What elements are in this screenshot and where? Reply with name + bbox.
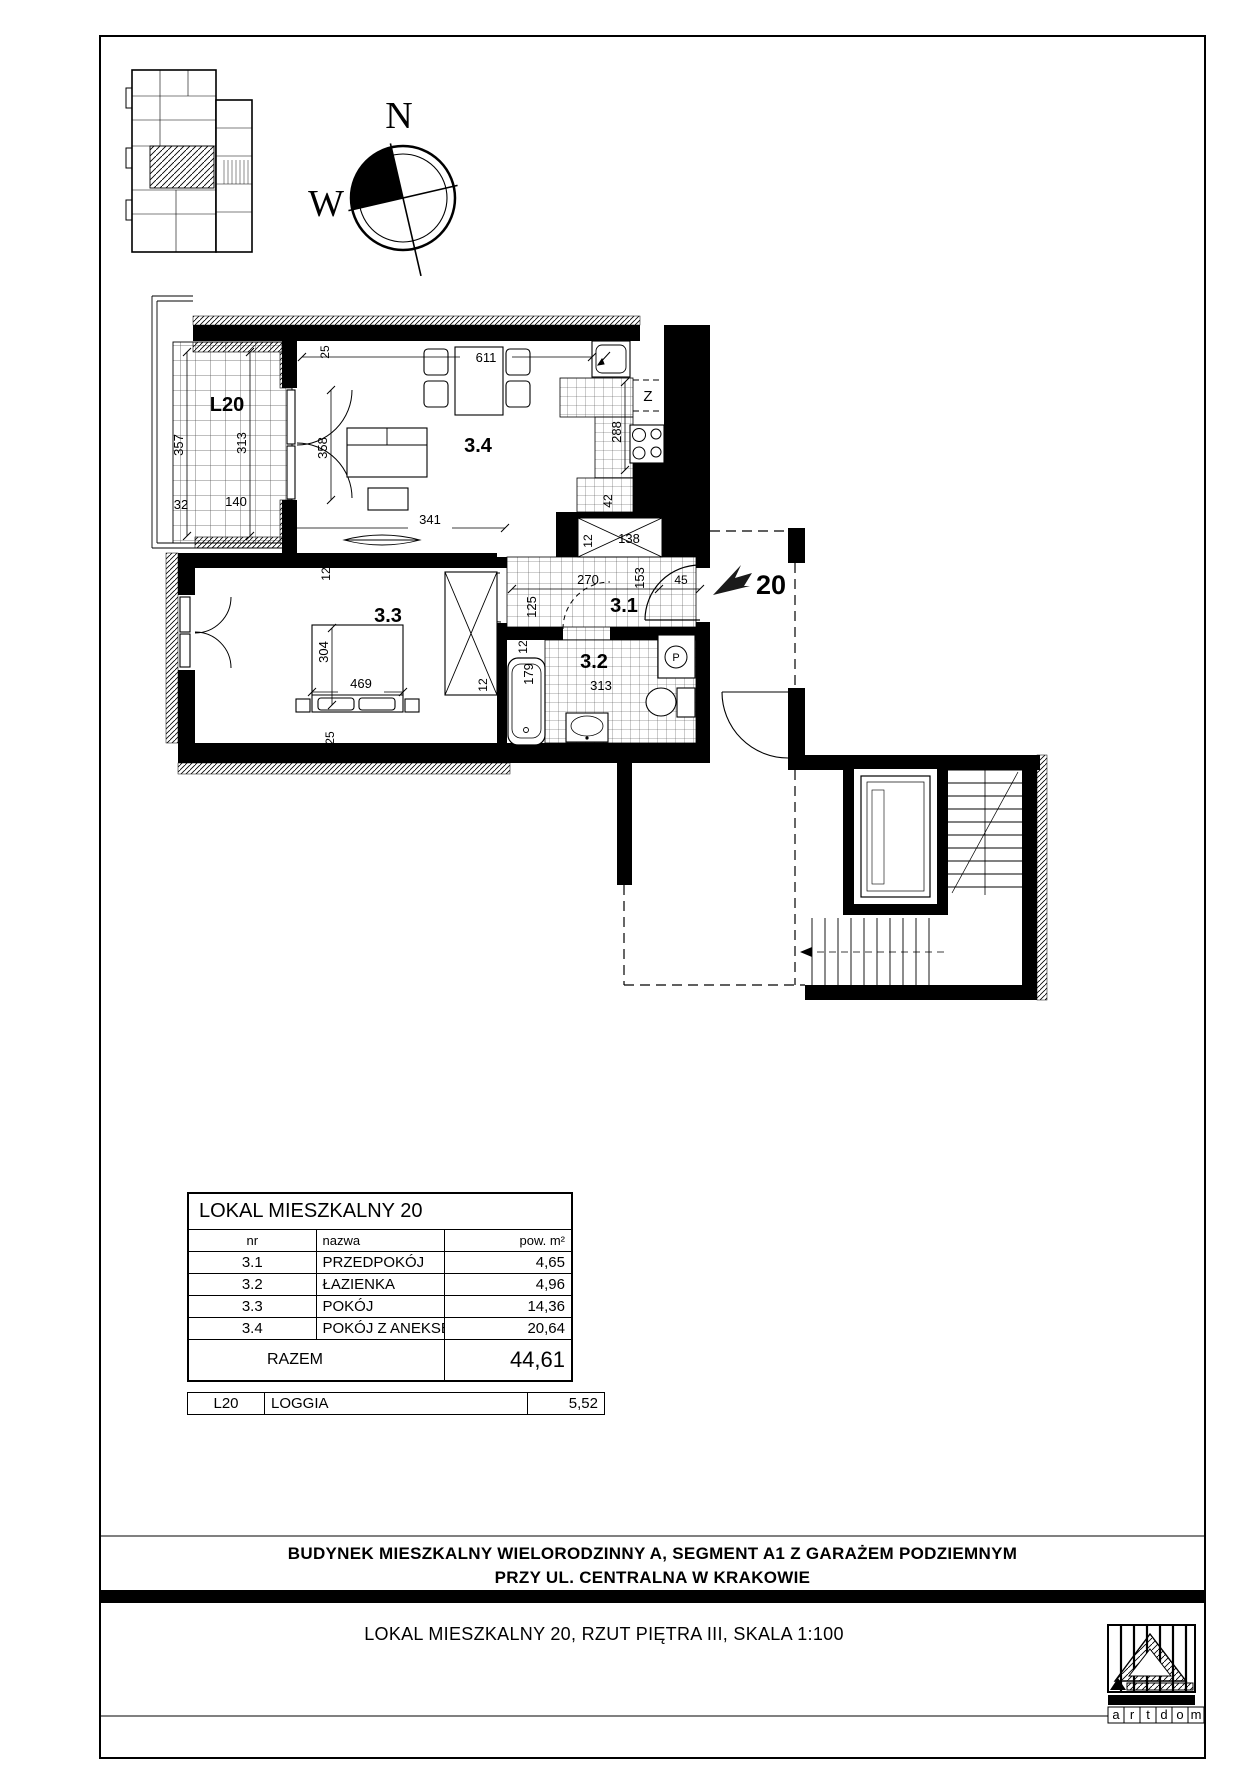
dim-12a: 12 bbox=[581, 534, 595, 548]
bath-threshold-tiles bbox=[563, 627, 612, 640]
label-fridge: Z bbox=[643, 388, 652, 405]
dim-42: 42 bbox=[601, 494, 615, 508]
building-title: BUDYNEK MIESZKALNY WIELORODZINNY A, SEGM… bbox=[100, 1542, 1205, 1590]
dim-288: 288 bbox=[609, 421, 624, 443]
table-row: 3.4 POKÓJ Z ANEKSEM KUCH. 20,64 bbox=[188, 1318, 572, 1340]
pillow bbox=[359, 698, 395, 710]
dim-304: 304 bbox=[316, 641, 331, 663]
floor-plan-sheet: { "compass": {"north": "N", "west": "W"}… bbox=[0, 0, 1250, 1767]
chair bbox=[506, 349, 530, 375]
decor-leaf bbox=[344, 535, 420, 545]
cell-nazwa: POKÓJ bbox=[316, 1296, 444, 1318]
floor-plan: P 20 bbox=[152, 296, 1047, 1000]
cell-nr: 3.4 bbox=[188, 1318, 316, 1340]
cell-pow: 4,96 bbox=[444, 1274, 572, 1296]
dim-25a: 25 bbox=[318, 345, 332, 359]
cell-nazwa: POKÓJ Z ANEKSEM KUCH. bbox=[316, 1318, 444, 1340]
entrance-arrow-icon bbox=[713, 565, 752, 595]
cell-n azwa: LOGGIA bbox=[265, 1393, 528, 1415]
table-title-row: LOKAL MIESZKALNY 20 bbox=[188, 1193, 572, 1230]
toilet-bowl bbox=[646, 688, 676, 716]
cell-pow: 5,52 bbox=[528, 1393, 605, 1415]
dim-45: 45 bbox=[674, 573, 688, 587]
kitchen-counter-top bbox=[560, 378, 633, 417]
unit-highlight-hatch bbox=[150, 146, 214, 188]
label-loggia: L20 bbox=[210, 394, 244, 416]
dim-357: 357 bbox=[171, 434, 186, 456]
cell-nazwa: PRZEDPOKÓJ bbox=[316, 1252, 444, 1274]
dim-140: 140 bbox=[225, 494, 247, 509]
stairs-lower-treads bbox=[812, 918, 929, 985]
building-title-line2: PRZY UL. CENTRALNA W KRAKOWIE bbox=[100, 1566, 1205, 1590]
dim-12d: 12 bbox=[476, 678, 490, 692]
artdom-logo: a r t d o m bbox=[1108, 1625, 1204, 1723]
cell-nr: 3.1 bbox=[188, 1252, 316, 1274]
logo-letter: d bbox=[1160, 1707, 1167, 1722]
label-living: 3.4 bbox=[464, 435, 493, 457]
table-row: 3.1 PRZEDPOKÓJ 4,65 bbox=[188, 1252, 572, 1274]
chair bbox=[424, 381, 448, 407]
cell-pow: 14,36 bbox=[444, 1296, 572, 1318]
dim-32: 32 bbox=[174, 497, 188, 512]
label-bath: 3.2 bbox=[580, 651, 608, 673]
stairwell-door bbox=[722, 692, 788, 758]
table-total-row: RAZEM 44,61 bbox=[188, 1340, 572, 1382]
logo-letter: a bbox=[1112, 1707, 1120, 1722]
unit-entrance-marker: 20 bbox=[713, 565, 786, 600]
loggia-table: L20 LOGGIA 5,52 bbox=[187, 1392, 605, 1415]
logo-bar bbox=[1108, 1695, 1195, 1705]
logo-letter: r bbox=[1130, 1707, 1135, 1722]
total-value: 44,61 bbox=[444, 1340, 572, 1382]
label-hall: 3.1 bbox=[610, 595, 638, 617]
dim-25b: 25 bbox=[323, 731, 337, 745]
dim-313a: 313 bbox=[234, 432, 249, 454]
label-bedroom: 3.3 bbox=[374, 605, 402, 627]
stairwell-block bbox=[722, 688, 1047, 1000]
nightstand bbox=[405, 699, 419, 712]
dim-179: 179 bbox=[521, 663, 536, 685]
dim-12e: 12 bbox=[319, 567, 333, 581]
cell-nr: 3.3 bbox=[188, 1296, 316, 1318]
toilet-tank bbox=[677, 688, 695, 717]
area-table: LOKAL MIESZKALNY 20 nr nazwa pow. m² 3.1… bbox=[187, 1192, 605, 1415]
cell-nr: L20 bbox=[188, 1393, 265, 1415]
chair bbox=[506, 381, 530, 407]
total-label: RAZEM bbox=[188, 1340, 444, 1382]
drawing-title: LOKAL MIESZKALNY 20, RZUT PIĘTRA III, SK… bbox=[100, 1624, 1108, 1645]
loggia-row: L20 LOGGIA 5,52 bbox=[188, 1393, 605, 1415]
dim-341: 341 bbox=[419, 512, 441, 527]
table-header-row: nr nazwa pow. m² bbox=[188, 1230, 572, 1252]
cell-nazwa: ŁAZIENKA bbox=[316, 1274, 444, 1296]
cell-pow: 4,65 bbox=[444, 1252, 572, 1274]
building-overview-miniplan bbox=[126, 70, 252, 252]
nightstand bbox=[296, 699, 310, 712]
compass-west-label: W bbox=[308, 183, 344, 225]
logo-letter-boxes: a r t d o m bbox=[1108, 1707, 1204, 1723]
col-header-nazwa: nazwa bbox=[316, 1230, 444, 1252]
table-row: 3.2 ŁAZIENKA 4,96 bbox=[188, 1274, 572, 1296]
dim-469: 469 bbox=[350, 676, 372, 691]
dim-358: 358 bbox=[315, 437, 330, 459]
coffee-table bbox=[368, 488, 408, 510]
logo-letter: m bbox=[1191, 1707, 1202, 1722]
logo-letter: o bbox=[1176, 1707, 1183, 1722]
unit-number: 20 bbox=[756, 570, 786, 600]
dim-125: 125 bbox=[524, 596, 539, 618]
logo-letter: t bbox=[1146, 1707, 1150, 1722]
title-divider-bar bbox=[100, 1590, 1205, 1603]
cell-nr: 3.2 bbox=[188, 1274, 316, 1296]
cell-pow: 20,64 bbox=[444, 1318, 572, 1340]
pillow bbox=[318, 698, 354, 710]
dim-270: 270 bbox=[577, 572, 599, 587]
compass-rose: N W bbox=[308, 95, 475, 289]
washer-label: P bbox=[672, 652, 679, 664]
stairs-direction-arrow bbox=[800, 947, 812, 957]
col-header-pow: pow. m² bbox=[444, 1230, 572, 1252]
dim-611: 611 bbox=[476, 350, 497, 365]
col-header-nr: nr bbox=[188, 1230, 316, 1252]
table-row: 3.3 POKÓJ 14,36 bbox=[188, 1296, 572, 1318]
elevator-interior bbox=[854, 769, 937, 904]
compass-north-label: N bbox=[385, 95, 412, 137]
dim-138: 138 bbox=[618, 531, 640, 546]
dim-153: 153 bbox=[632, 567, 647, 589]
building-title-line1: BUDYNEK MIESZKALNY WIELORODZINNY A, SEGM… bbox=[100, 1542, 1205, 1566]
sheet-graphics: N W bbox=[0, 0, 1250, 1767]
table-title: LOKAL MIESZKALNY 20 bbox=[188, 1193, 572, 1230]
chair bbox=[424, 349, 448, 375]
dim-313b: 313 bbox=[590, 678, 612, 693]
dim-12c: 12 bbox=[516, 640, 530, 654]
